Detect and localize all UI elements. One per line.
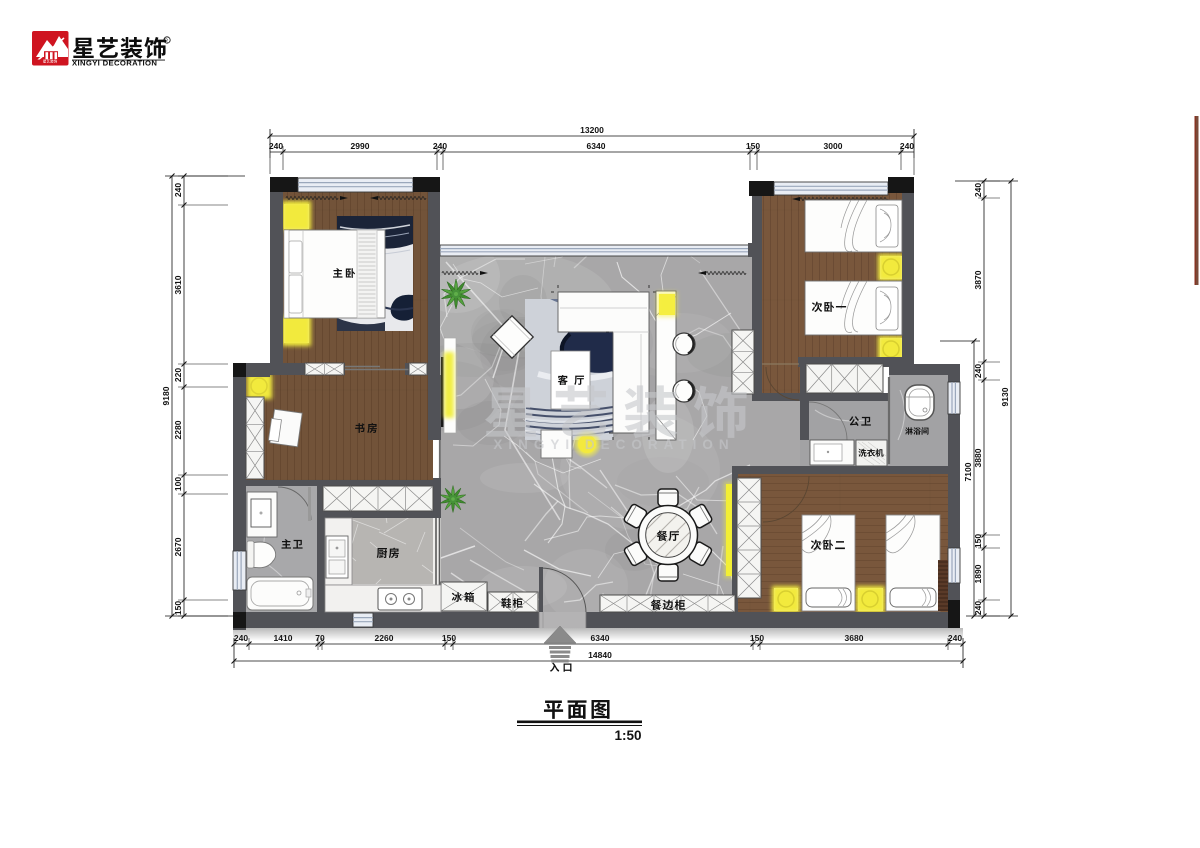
svg-text:2990: 2990 [351, 141, 370, 151]
svg-text:9130: 9130 [1000, 387, 1010, 406]
svg-text:150: 150 [973, 534, 983, 548]
svg-text:13200: 13200 [580, 125, 604, 135]
svg-text:240: 240 [973, 183, 983, 197]
svg-text:6340: 6340 [587, 141, 606, 151]
svg-text:240: 240 [900, 141, 914, 151]
svg-text:220: 220 [173, 368, 183, 382]
svg-text:3880: 3880 [973, 448, 983, 467]
svg-text:3870: 3870 [973, 270, 983, 289]
svg-text:2670: 2670 [173, 537, 183, 556]
svg-text:XINGYI DECORATION: XINGYI DECORATION [493, 437, 734, 452]
svg-text:3610: 3610 [173, 275, 183, 294]
svg-text:240: 240 [173, 183, 183, 197]
svg-text:240: 240 [269, 141, 283, 151]
svg-text:星艺装饰: 星艺装饰 [43, 59, 58, 64]
svg-text:240: 240 [433, 141, 447, 151]
svg-text:150: 150 [746, 141, 760, 151]
svg-text:XINGYI DECORATION: XINGYI DECORATION [72, 59, 157, 68]
svg-text:3000: 3000 [824, 141, 843, 151]
svg-text:R: R [164, 38, 168, 44]
svg-text:7100: 7100 [963, 462, 973, 481]
svg-text:150: 150 [173, 601, 183, 615]
svg-text:14840: 14840 [588, 650, 612, 660]
svg-text:1890: 1890 [973, 564, 983, 583]
svg-text:240: 240 [973, 601, 983, 615]
svg-text:1:50: 1:50 [614, 728, 641, 743]
svg-text:2280: 2280 [173, 420, 183, 439]
svg-text:9180: 9180 [161, 386, 171, 405]
svg-text:100: 100 [173, 477, 183, 491]
svg-text:240: 240 [973, 364, 983, 378]
